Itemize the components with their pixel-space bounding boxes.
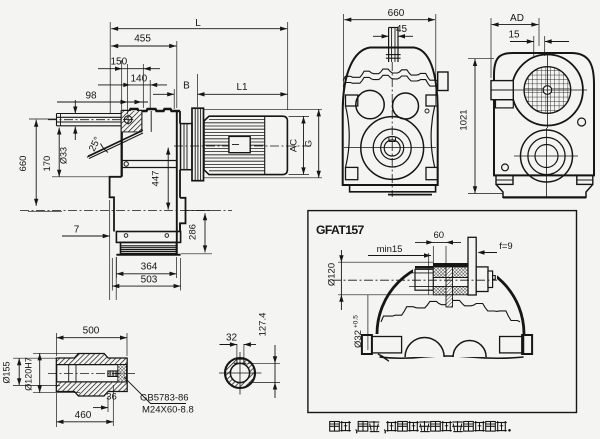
svg-text:660: 660	[388, 8, 405, 19]
svg-text:660: 660	[18, 156, 29, 172]
svg-text:140: 140	[130, 74, 147, 85]
svg-text:7: 7	[74, 225, 80, 236]
svg-text:GB5783-86: GB5783-86	[140, 393, 189, 404]
svg-text:36: 36	[106, 392, 117, 403]
svg-text:AC: AC	[289, 139, 300, 152]
svg-text:1021: 1021	[459, 109, 470, 130]
svg-text:L: L	[195, 18, 201, 29]
svg-text:Ø155: Ø155	[2, 361, 12, 383]
svg-text:B: B	[183, 81, 190, 92]
svg-text:286: 286	[188, 224, 199, 240]
svg-text:98: 98	[85, 91, 97, 102]
svg-text:150: 150	[110, 57, 127, 68]
svg-text:Ø120H7: Ø120H7	[24, 357, 34, 391]
svg-text:+0.5: +0.5	[353, 315, 360, 328]
svg-text:L1: L1	[236, 82, 248, 93]
svg-text:500: 500	[83, 326, 100, 337]
svg-text:460: 460	[75, 410, 92, 421]
svg-text:f=9: f=9	[499, 241, 512, 252]
svg-text:Ø120: Ø120	[327, 263, 338, 286]
svg-text:G: G	[304, 140, 315, 147]
svg-text:127.4: 127.4	[258, 313, 269, 337]
svg-text:170: 170	[42, 156, 53, 172]
svg-text:503: 503	[141, 275, 158, 286]
svg-text:Ø33: Ø33	[59, 147, 69, 164]
svg-text:455: 455	[134, 34, 151, 45]
svg-text:15: 15	[508, 30, 520, 41]
svg-text:min15: min15	[377, 244, 403, 255]
svg-text:364: 364	[141, 262, 158, 273]
svg-text:447: 447	[151, 171, 162, 187]
svg-text:Ø32: Ø32	[353, 330, 364, 348]
svg-text:45: 45	[396, 24, 408, 35]
svg-text:GFAT157: GFAT157	[316, 223, 365, 237]
svg-text:32: 32	[226, 333, 238, 344]
svg-text:AD: AD	[510, 13, 524, 24]
svg-text:60: 60	[434, 230, 445, 241]
svg-text:M24X60-8.8: M24X60-8.8	[142, 405, 194, 416]
